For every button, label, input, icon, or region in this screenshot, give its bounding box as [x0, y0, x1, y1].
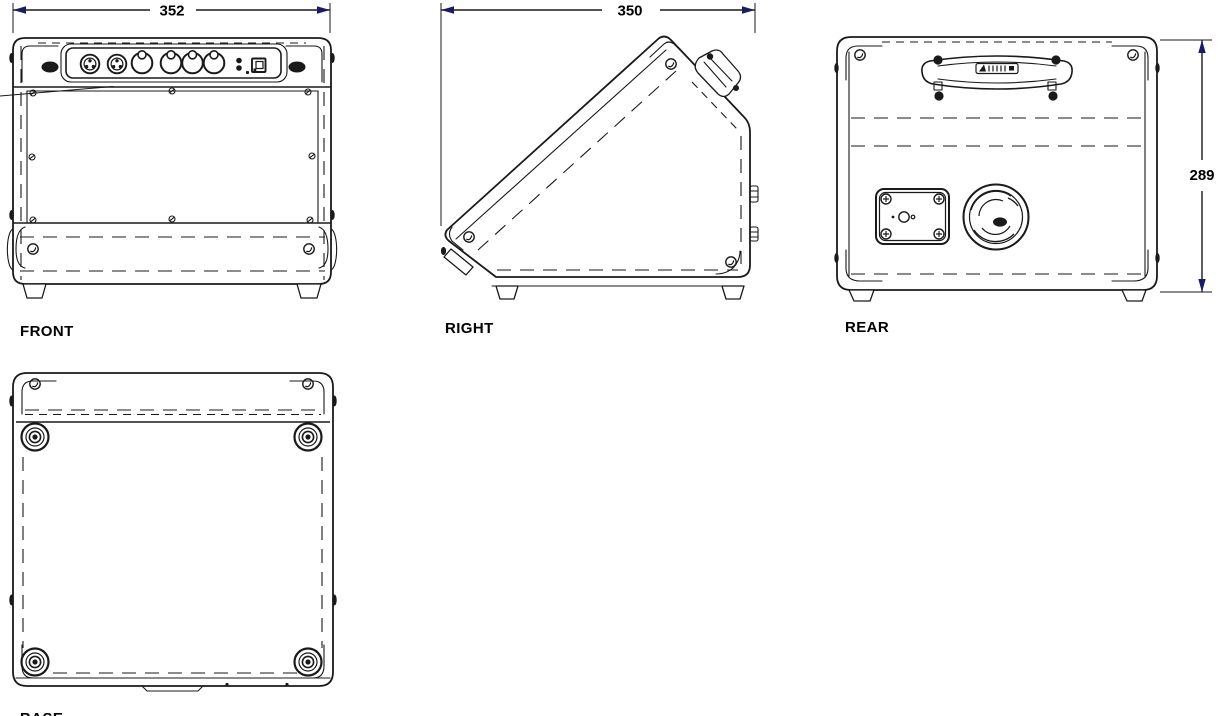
front-foot-left [23, 284, 46, 298]
handle-bolt [1048, 91, 1057, 100]
base-view-label: BASE [20, 710, 63, 716]
base-foot [295, 649, 322, 676]
right-foot-front [444, 249, 473, 275]
rear-port [964, 185, 1029, 250]
corner-screw [303, 379, 313, 389]
rear-view: 289 REAR [834, 37, 1214, 336]
top-corner-protector [650, 42, 688, 69]
right-depth-dimension-text: 350 [617, 3, 642, 20]
orthographic-views-drawing: 352 [0, 0, 1220, 716]
right-view: 350 [441, 3, 758, 338]
technical-drawing-page: 352 [0, 0, 1220, 716]
base-foot [22, 424, 49, 451]
rear-connector-plate [876, 189, 949, 244]
carry-handle [922, 55, 1072, 100]
base-foot [295, 424, 322, 451]
panel-vent-left [42, 62, 59, 73]
rear-foot-left [849, 290, 874, 301]
handle-bolt [934, 91, 943, 100]
corner-bumper-left [7, 227, 38, 270]
panel-vent-right [289, 62, 306, 73]
handle-bolt [933, 55, 942, 64]
xlr-input-1 [81, 55, 100, 74]
right-foot-right [722, 286, 744, 299]
right-view-label: RIGHT [445, 320, 494, 337]
rear-connector-edge [750, 186, 758, 241]
rear-view-label: REAR [845, 319, 889, 336]
handle-side-profile [695, 50, 740, 97]
handle-bolt [1051, 55, 1060, 64]
base-outline [13, 373, 333, 686]
rear-height-dimension-text: 289 [1189, 167, 1214, 184]
base-foot [22, 649, 49, 676]
grille-screws [29, 88, 315, 223]
front-view: 352 [0, 3, 337, 341]
front-width-dimension-text: 352 [159, 3, 184, 20]
power-switch [252, 59, 266, 73]
front-foot-right [297, 284, 321, 298]
corner-screw [855, 50, 865, 60]
rear-foot-right [1122, 290, 1146, 301]
port-center [993, 217, 1007, 226]
rear-height-dimension: 289 [1160, 40, 1215, 292]
xlr-input-2 [108, 55, 127, 74]
led-indicator [236, 65, 242, 71]
control-panel [42, 44, 306, 82]
right-foot-left [496, 286, 518, 299]
led-indicator [236, 58, 242, 64]
front-view-label: FRONT [20, 323, 74, 340]
corner-screw [30, 379, 40, 389]
corner-screw [1128, 50, 1138, 60]
front-width-dimension: 352 [13, 3, 330, 34]
base-view: BASE [9, 373, 336, 716]
